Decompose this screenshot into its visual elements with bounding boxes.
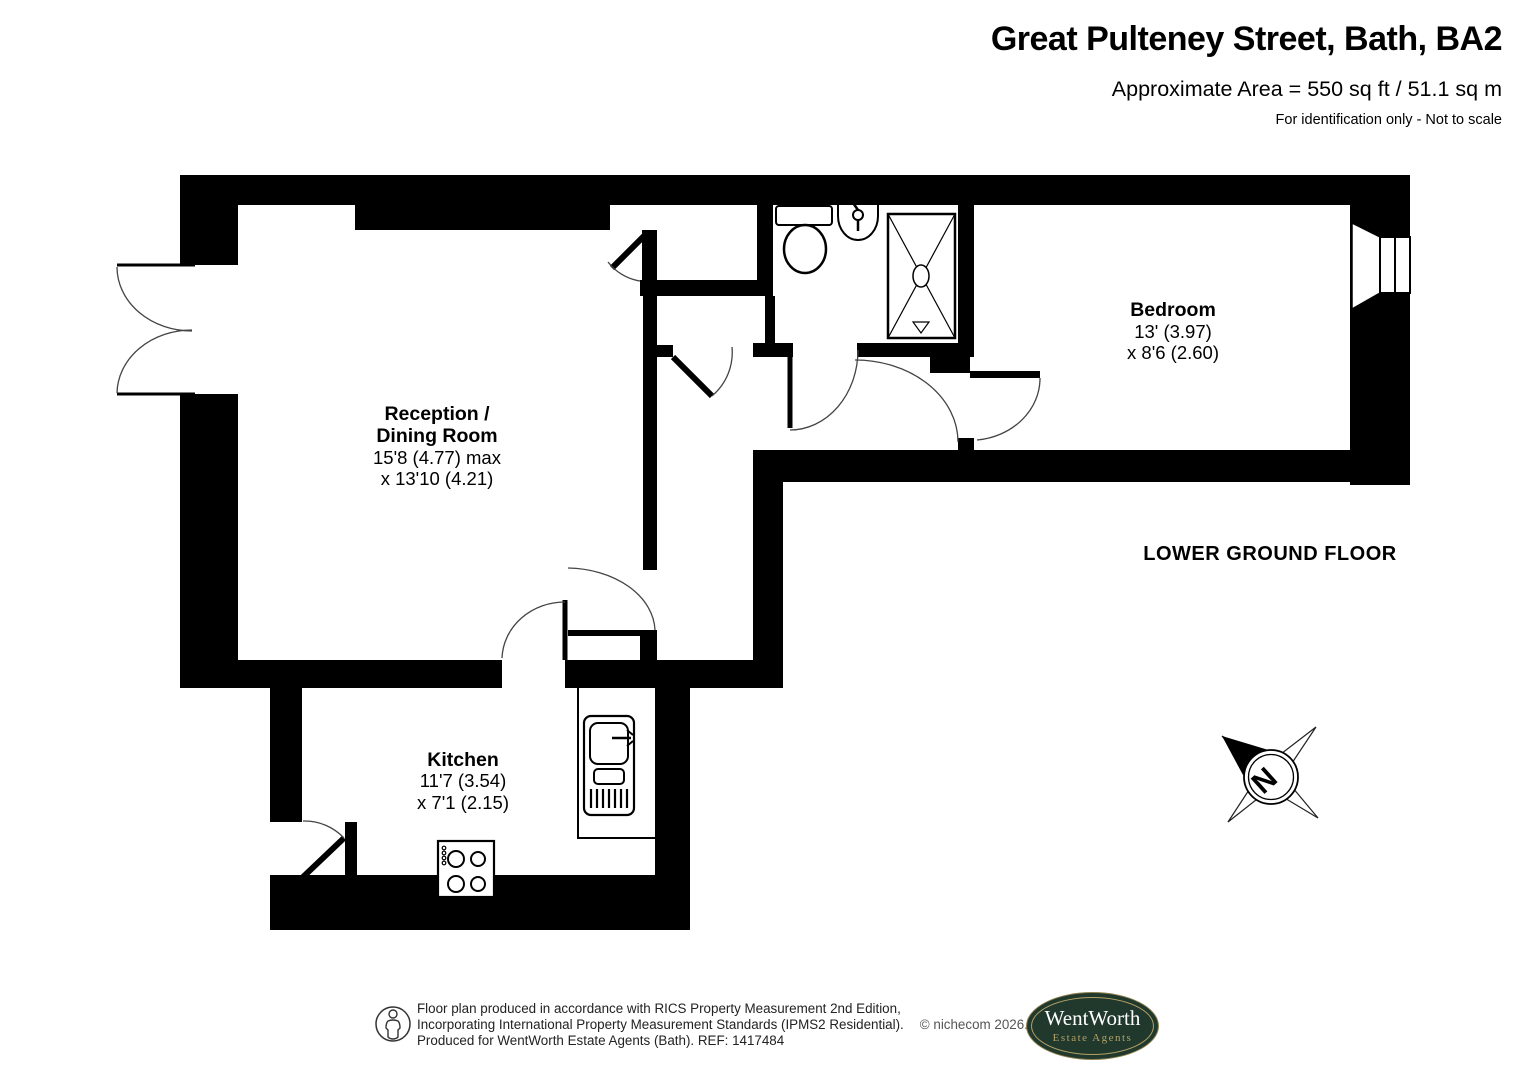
floorplan-svg: Reception / Dining Room 15'8 (4.77) max … (0, 0, 1527, 1080)
compass-icon: N (1222, 727, 1318, 822)
person-icon (376, 1007, 410, 1041)
shower-icon (888, 214, 955, 338)
hob-icon (438, 841, 494, 897)
reception-dim-line2: x 13'10 (4.21) (381, 468, 494, 489)
kitchen-dim-line1: 11'7 (3.54) (420, 770, 507, 791)
room-label-kitchen: Kitchen 11'7 (3.54) x 7'1 (2.15) (417, 749, 509, 813)
footer-line-1: Floor plan produced in accordance with R… (417, 1001, 1028, 1017)
page-title: Great Pulteney Street, Bath, BA2 (991, 20, 1502, 59)
footer-disclaimer: Floor plan produced in accordance with R… (417, 1001, 1028, 1050)
room-label-reception: Reception / Dining Room 15'8 (4.77) max … (373, 403, 502, 489)
bedroom-name: Bedroom (1130, 299, 1216, 321)
footer-line-2-text: Incorporating International Property Mea… (417, 1017, 904, 1032)
double-doors-icon (117, 265, 195, 394)
header: Great Pulteney Street, Bath, BA2 Approxi… (991, 20, 1502, 128)
copyright-note: © nichecom 2026. (920, 1017, 1028, 1032)
kitchen-name: Kitchen (427, 749, 499, 771)
bedroom-dim-line1: 13' (3.97) (1134, 321, 1212, 342)
floorplan-page: Reception / Dining Room 15'8 (4.77) max … (0, 0, 1527, 1080)
room-label-bedroom: Bedroom 13' (3.97) x 8'6 (2.60) (1127, 299, 1219, 363)
reception-name-line1: Reception / (384, 403, 490, 425)
footer-line-2: Incorporating International Property Mea… (417, 1017, 1028, 1033)
wentworth-logo: WentWorth Estate Agents (1026, 992, 1159, 1060)
footer-line-3: Produced for WentWorth Estate Agents (Ba… (417, 1033, 1028, 1049)
kitchen-sink-icon (584, 716, 634, 815)
floor-label: LOWER GROUND FLOOR (1143, 543, 1396, 565)
bedroom-dim-line2: x 8'6 (2.60) (1127, 342, 1219, 363)
kitchen-dim-line2: x 7'1 (2.15) (417, 792, 509, 813)
approximate-area: Approximate Area = 550 sq ft / 51.1 sq m (991, 77, 1502, 102)
toilet-icon (776, 206, 832, 273)
scale-disclaimer: For identification only - Not to scale (991, 112, 1502, 128)
reception-name-line2: Dining Room (376, 425, 497, 447)
reception-dim-line1: 15'8 (4.77) max (373, 447, 502, 468)
logo-ring (1031, 997, 1154, 1055)
